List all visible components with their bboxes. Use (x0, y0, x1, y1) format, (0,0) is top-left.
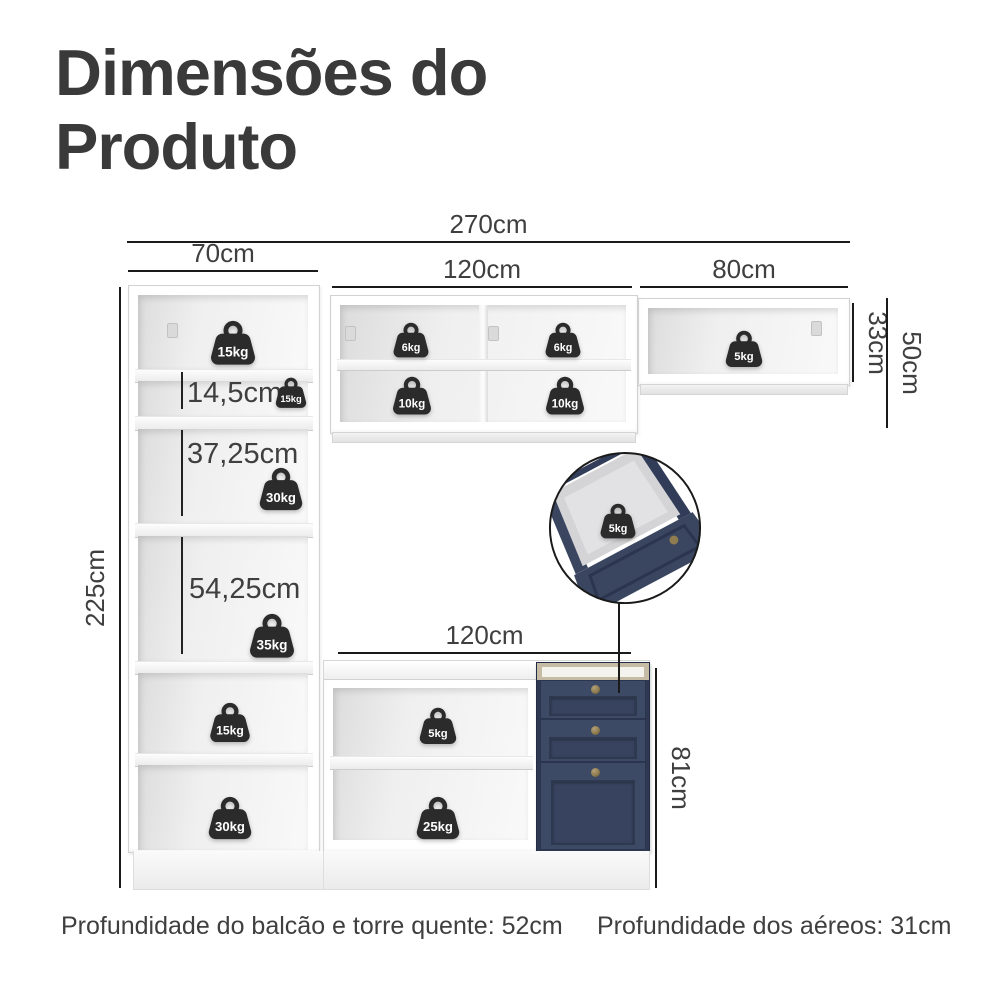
blue-drawer-unit (536, 662, 650, 852)
tick-line (181, 372, 183, 409)
hinge-icon (488, 326, 499, 341)
weight-badge-icon: 5kg (720, 330, 768, 371)
weight-label: 30kg (266, 490, 296, 505)
dimension-line (852, 303, 854, 382)
weight-label: 15kg (218, 344, 249, 359)
footer-counter-depth: Profundidade do balcão e torre quente: 5… (61, 912, 563, 941)
tick-line (181, 430, 183, 516)
weight-label: 5kg (734, 351, 754, 363)
footer-aerial-depth: Profundidade dos aéreos: 31cm (597, 912, 951, 941)
hinge-icon (811, 321, 822, 336)
page-title-line1: Dimensões do (55, 36, 487, 110)
weight-badge-icon: 30kg (202, 796, 258, 843)
weight-badge-icon: 15kg (204, 320, 262, 369)
hinge-icon (345, 326, 356, 341)
weight-label: 25kg (423, 819, 453, 834)
tick-line (181, 537, 183, 654)
drawer-knob-icon (591, 685, 600, 694)
drawer-front-1 (540, 680, 646, 719)
weight-badge-icon: 5kg (414, 707, 462, 748)
door-front (540, 762, 646, 850)
dimension-total-height: 225cm (89, 287, 121, 888)
dimension-counter-width: 120cm (338, 625, 631, 654)
dimension-label: 50cm (896, 331, 927, 395)
countertop-rim-inner (542, 667, 644, 677)
hinge-icon (167, 323, 178, 338)
counter-shelf (330, 756, 533, 770)
dimension-label: 70cm (128, 240, 318, 270)
weight-badge-icon: 5kg (595, 503, 641, 542)
weight-badge-icon: 25kg (410, 796, 466, 843)
dimension-label: 120cm (338, 622, 631, 652)
dimension-tower-width: 70cm (128, 243, 318, 272)
dimension-upper-cabinet-width: 120cm (332, 259, 632, 288)
door-recess (551, 780, 635, 845)
plinth-base (133, 851, 650, 890)
weight-label: 35kg (257, 637, 288, 652)
weight-label: 15kg (216, 724, 244, 738)
dimension-aerial-height: 50cm (886, 298, 922, 428)
dimension-label: 270cm (127, 211, 850, 241)
weight-badge-icon: 10kg (387, 376, 437, 418)
aerial-middle-bottom-panel (332, 432, 636, 443)
product-dimensions-diagram: Dimensões do Produto (0, 0, 1000, 1000)
drawer-front-2 (540, 719, 646, 762)
dimension-aerial-right-width: 80cm (640, 259, 848, 288)
aerial-right-bottom-panel (640, 384, 848, 395)
dimension-line (332, 286, 632, 288)
weight-label: 10kg (399, 397, 426, 410)
dimension-counter-height: 81cm (655, 668, 691, 888)
dimension-label: 120cm (332, 256, 632, 286)
tower-cabinet (128, 285, 320, 853)
weight-badge-icon: 6kg (540, 322, 586, 361)
countertop-rim (537, 663, 649, 680)
weight-label: 15kg (280, 394, 302, 404)
dimension-line (655, 668, 657, 888)
weight-badge-icon: 15kg (271, 377, 311, 411)
weight-badge-icon: 35kg (243, 613, 301, 662)
drawer-knob-icon (591, 726, 600, 735)
dimension-line (338, 652, 631, 654)
weight-badge-icon: 6kg (388, 322, 434, 361)
drawer-recess (549, 696, 637, 716)
weight-badge-icon: 10kg (540, 376, 590, 418)
dimension-aerial-right-height: 33cm (852, 303, 886, 382)
weight-label: 6kg (402, 342, 421, 354)
dimension-line (128, 270, 318, 272)
plinth-seam (323, 851, 324, 889)
aerial-middle-cabinet (330, 295, 638, 434)
drawer-recess (549, 737, 637, 759)
dimension-line (640, 286, 848, 288)
weight-label: 5kg (428, 728, 448, 740)
dimension-line (119, 287, 121, 888)
dimension-shelf-small: 14,5cm (187, 379, 282, 408)
weight-label: 6kg (554, 342, 573, 354)
dimension-label: 81cm (665, 746, 696, 810)
callout-leader-line (618, 603, 620, 693)
dimension-shelf-large: 54,25cm (189, 575, 300, 604)
dimension-line (886, 298, 888, 428)
door-knob-icon (591, 768, 600, 777)
page-title: Dimensões do Produto (55, 36, 487, 184)
weight-label: 30kg (215, 819, 245, 834)
dimension-label: 225cm (80, 548, 111, 626)
weight-label: 10kg (552, 397, 579, 410)
dimension-label: 80cm (640, 256, 848, 286)
dimension-shelf-middle: 37,25cm (187, 440, 298, 469)
page-title-line2: Produto (55, 110, 487, 184)
aerial-middle-shelf (337, 359, 631, 371)
weight-badge-icon: 15kg (204, 702, 256, 746)
weight-badge-icon: 30kg (253, 467, 309, 514)
weight-label: 5kg (609, 523, 628, 535)
